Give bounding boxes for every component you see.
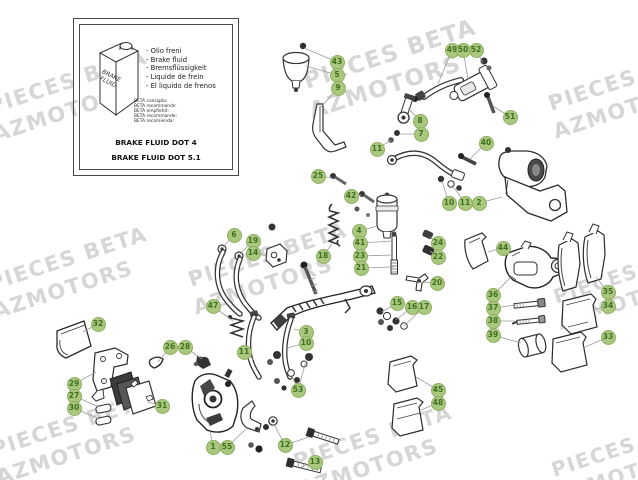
pushrod-drawing — [376, 229, 435, 331]
front-caliper-drawing — [192, 369, 340, 475]
spring-drawing — [329, 204, 340, 246]
upper-hoses-drawing — [217, 224, 287, 319]
recommendation-list: BETA consiglia: BETA recommends: BETA em… — [134, 100, 177, 125]
recommendation-line: BETA recomienda: — [134, 120, 177, 125]
fluid-name: - Bremsflüssigkeit — [146, 64, 216, 73]
reservoir-bracket-drawing — [313, 104, 346, 152]
fluid-name: - Brake fluid — [146, 56, 216, 65]
reservoir-drawing — [283, 43, 309, 92]
disc-guard-drawing — [57, 321, 91, 358]
parts-diagram-page: PIECES BETA AZMOTORS PIECES BETA AZMOTOR… — [0, 0, 638, 480]
rear-caliper-bracket-drawing — [499, 147, 567, 221]
rear-pads-drawing — [552, 224, 605, 372]
pedal-bolt-drawing — [301, 262, 319, 295]
spec-dot51: BRAKE FLUID DOT 5.1 — [74, 153, 238, 162]
screws-drawing — [330, 173, 374, 217]
fluid-name-list: - Olio freni - Brake fluid - Bremsflüssi… — [146, 47, 216, 91]
rear-master-cylinder-drawing — [376, 193, 398, 239]
rear-guard-drawing — [465, 233, 488, 269]
fluid-name: - Olio freni — [146, 47, 216, 56]
rear-plates-drawing — [388, 356, 423, 436]
fluid-name: - Liquide de frein — [146, 73, 216, 82]
fluid-name: - El liquido de frenos — [146, 82, 216, 91]
banjo-fitting-drawing — [388, 93, 416, 143]
brake-fluid-legend: BRAKE FLUID - Olio freni - Brake fluid -… — [73, 18, 239, 176]
spec-dot4: BRAKE FLUID DOT 4 — [74, 138, 238, 147]
rear-hose-drawing — [388, 153, 477, 191]
